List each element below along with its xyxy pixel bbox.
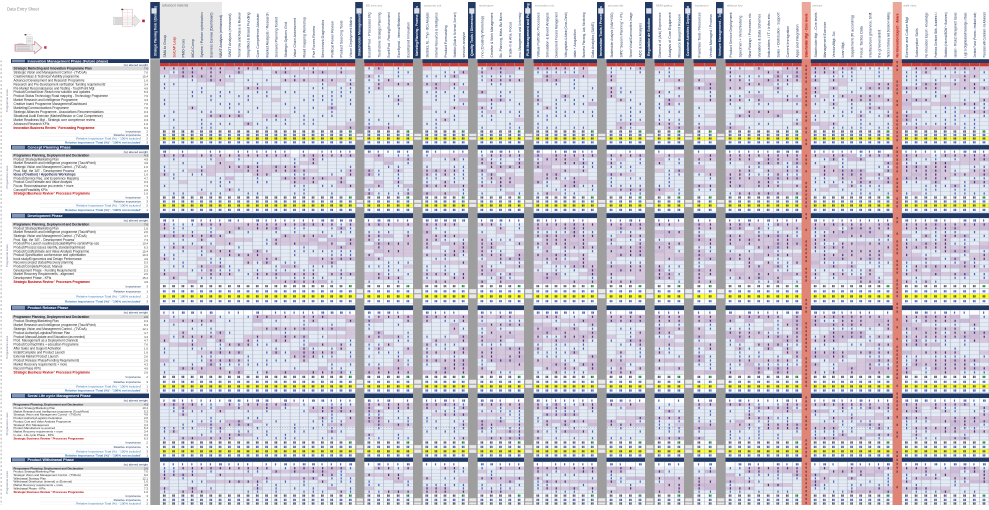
svg-text:Excell/Prod - Processes Mg: Excell/Prod - Processes Mg <box>368 13 372 58</box>
svg-text:Market Analysis / Research: Market Analysis / Research <box>265 13 269 58</box>
svg-text:Statistics (Data to Schemat, S: Statistics (Data to Schemat, Scenari) <box>453 13 457 58</box>
svg-text:PMO Cross: PMO Cross <box>182 39 186 58</box>
svg-text:Processes with Customers - be: Processes with Customers - be Advanced <box>983 13 987 58</box>
svg-text:Value Chain Assessment: Value Chain Assessment <box>293 18 297 58</box>
svg-text:Stakeholder Mgt - Core levels: Stakeholder Mgt - Core levels <box>814 12 818 57</box>
svg-text:Strategic Business Review ' Pr: Strategic Business Review ' Processes Pr… <box>14 436 85 440</box>
svg-text:Supplement (PI according): Supplement (PI according) <box>850 15 854 58</box>
svg-text:Sales + Distribution - Support: Sales + Distribution - Support <box>777 13 781 58</box>
svg-text:Importance: Importance <box>126 375 142 379</box>
svg-text:No Innovation Export - knowled: No Innovation Export - knowledge <box>925 13 929 58</box>
svg-text:Relative importance: Relative importance <box>114 445 142 449</box>
svg-text:Programme Lines: Programme Lines <box>5 165 9 188</box>
svg-text:Product Service Deployment: Product Service Deployment <box>729 13 733 58</box>
svg-text:Product Forecasting: Product Forecasting <box>444 25 448 57</box>
svg-text:New Ratings / Processes etc.: New Ratings / Processes etc. <box>748 12 752 57</box>
svg-text:alliance key: alliance key <box>727 4 743 8</box>
svg-text:Stakeholder Mgt - Core levels: Stakeholder Mgt - Core levels <box>805 14 809 58</box>
svg-text:SoCAP Leap: SoCAP Leap <box>172 37 176 58</box>
svg-text:Product Sourcing Tools: Product Sourcing Tools <box>340 20 344 57</box>
svg-text:Development Process Management: Development Process Management <box>555 13 559 58</box>
svg-text:Product Withdrawal Phase: Product Withdrawal Phase <box>28 458 74 462</box>
svg-text:Relative Importance Total (%): Relative Importance Total (%) - '100% in… <box>76 295 141 299</box>
svg-text:Innovation Business Review ' F: Innovation Business Review ' Forecasting… <box>14 126 95 130</box>
svg-text:the gr/several/d/d: the gr/several/d/d <box>878 30 882 58</box>
svg-text:expansion: expansion <box>695 4 709 8</box>
svg-text:Apps and Integration: Apps and Integration <box>796 24 800 57</box>
svg-text:Industries / IT / Infra etc.: Industries / IT / Infra etc. <box>767 13 771 58</box>
svg-text:Serial Life cycle Management P: Serial Life cycle Management Phase <box>28 394 91 398</box>
svg-text:Programme Lines: Programme Lines <box>5 412 9 435</box>
svg-text:Simulation & Event Analysis: Simulation & Event Analysis <box>546 12 550 57</box>
svg-text:Statistics (Informal/BOW + Bus: Statistics (Informal/BOW + Business) <box>944 13 948 58</box>
svg-text:Internal Resources & Intellige: Internal Resources & Intelligence <box>435 13 439 58</box>
svg-text:Trade-in & Aha. Focus: Trade-in & Aha. Focus <box>509 22 513 58</box>
svg-text:Excell/Prod - Planning/Environ: Excell/Prod - Planning/Environment <box>387 13 391 58</box>
svg-text:Decision Focus (Process - feed: Decision Focus (Process - feedback side) <box>973 13 977 58</box>
svg-text:customer put: customer put <box>424 4 442 8</box>
svg-text:Innovation Management Phase (F: Innovation Management Phase (Future phas… <box>28 59 109 63</box>
svg-text:Diamond of (Anti) Experience: Diamond of (Anti) Experience <box>658 13 662 58</box>
svg-text:Product Release Phase: Product Release Phase <box>28 306 69 310</box>
svg-text:Data Analytics (SAVE): Data Analytics (SAVE) <box>591 22 595 57</box>
svg-text:Exercise and Culture Mgt: Exercise and Culture Mgt <box>905 17 909 57</box>
svg-text:Volks-graphics & Admin (Cross-: Volks-graphics & Admin (Cross-Check) <box>564 13 568 58</box>
svg-text:Interface/core gr/service, Shi: Interface/core gr/service, Shift <box>869 13 873 58</box>
svg-text:Relative Importance Total (%): Relative Importance Total (%) - '100% in… <box>76 502 141 505</box>
svg-text:Strategic Business Review ' Pr: Strategic Business Review ' Processes Pr… <box>14 490 85 494</box>
svg-text:innovation mix: innovation mix <box>535 4 555 8</box>
svg-text:Excell/prod - Internal/Relatio: Excell/prod - Internal/Relations <box>397 12 401 57</box>
svg-text:System / Partner optimisation: System / Partner optimisation <box>200 12 204 57</box>
svg-text:Vendor Managed / Process: Vendor Managed / Process <box>709 14 713 58</box>
svg-text:Variations & Data Schemes: Variations & Data Schemes <box>757 14 761 58</box>
svg-text:Smart Virtual/Communities Imag: Smart Virtual/Communities Image <box>629 13 633 58</box>
svg-text:Five Forces Review: Five Forces Review <box>312 26 316 58</box>
svg-text:4.9: 4.9 <box>144 280 148 284</box>
svg-text:NB/IT Analysis (enhanced): NB/IT Analysis (enhanced) <box>219 15 223 57</box>
svg-text:MCA Comp: MCA Comp <box>191 39 195 57</box>
svg-text:SMA to Group: SMA to Group <box>163 35 167 58</box>
svg-text:Development Phase: Development Phase <box>28 214 63 218</box>
svg-text:Analysis of Core Equipment: Analysis of Core Equipment <box>668 13 672 58</box>
svg-text:Relative importance: Relative importance <box>114 289 142 293</box>
svg-text:Current Immigration: Current Immigration <box>786 26 790 58</box>
svg-text:Business Planning, Lab, Monito: Business Planning, Lab, Monitoring <box>582 13 586 58</box>
svg-text:Logic & Organisation/Knowledge: Logic & Organisation/Knowledge of base <box>963 13 967 58</box>
svg-text:Lean Mgt.: Lean Mgt. <box>841 42 845 58</box>
svg-text:Focus: Tactics Data: Focus: Tactics Data <box>859 26 863 57</box>
svg-text:ADC & Knee Analysis: ADC & Knee Analysis <box>639 23 643 58</box>
svg-text:nno. Management and University: nno. Management and University <box>518 12 522 57</box>
svg-text:SWOT Analysis (enhanced): SWOT Analysis (enhanced) <box>228 13 232 57</box>
svg-text:BD intro any: BD intro any <box>366 4 383 8</box>
svg-text:Regulation de Solution: Regulation de Solution <box>647 18 651 56</box>
svg-text:Resource Blueprint Review: Resource Blueprint Review <box>678 14 682 58</box>
svg-text:Stakeholder Analysis (VdW+VSG): Stakeholder Analysis (VdW+VSG) <box>610 13 614 58</box>
svg-text:techniques: techniques <box>479 4 494 8</box>
svg-text:advanced material: advanced material <box>162 4 188 8</box>
svg-text:Subscription Skills: Subscription Skills <box>915 28 919 57</box>
svg-text:Venture Management - Tools: Venture Management - Tools <box>718 9 722 56</box>
svg-text:nno (Creativity Workshop): nno (Creativity Workshop) <box>481 16 485 57</box>
svg-text:Touchstone Strategic Planning: Touchstone Strategic Planning <box>377 12 381 57</box>
svg-text:Programme Lines: Programme Lines <box>5 89 9 112</box>
svg-text:Strategic Options Grid: Strategic Options Grid <box>284 22 288 57</box>
svg-text:Franchise Tools / Resources: Franchise Tools / Resources <box>698 12 702 57</box>
svg-text:Quality Tools / Dimensions: Quality Tools / Dimensions <box>470 11 474 56</box>
svg-text:Relative Importance 'Total (%): Relative Importance 'Total (%)' - '100% … <box>65 140 141 144</box>
svg-text:Professor. Decisions Skills -: Professor. Decisions Skills - Academic L… <box>934 13 938 58</box>
svg-text:Scenario Planning Toolkit: Scenario Planning Toolkit <box>275 17 279 57</box>
svg-text:Statistics, NL, TTys - BCs Ana: Statistics, NL, TTys - BCs Analysis <box>426 12 430 57</box>
svg-text:Simplified & Brand Funding: Simplified & Brand Funding <box>247 13 251 58</box>
svg-text:Concept Planning Phase: Concept Planning Phase <box>28 146 71 150</box>
svg-text:Management Exercise: Management Exercise <box>823 22 827 58</box>
svg-text:Programme Lines: Programme Lines <box>5 244 9 267</box>
svg-text:Specimen + Verschiedung: Specimen + Verschiedung <box>738 16 742 58</box>
svg-text:Business Canvas (Dashboard): Business Canvas (Dashboard) <box>210 13 214 58</box>
svg-text:Virtual Portfolio Processes: Virtual Portfolio Processes <box>537 12 541 57</box>
svg-text:MMA galaxy: MMA galaxy <box>656 4 673 8</box>
svg-text:SIPC 'Season Planning' + Plu: SIPC 'Season Planning' + Plu <box>619 13 623 58</box>
svg-text:Programme Lines: Programme Lines <box>5 335 9 358</box>
svg-text:Bo. Planning, Meta. Biz Bains: Bo. Planning, Meta. Biz Bains <box>499 12 503 57</box>
svg-text:Tomorrow and Raise & Review: Tomorrow and Raise & Review <box>237 12 241 57</box>
svg-text:Relative Importance 'Total (%): Relative Importance 'Total (%)' - '100% … <box>65 454 141 458</box>
svg-text:Road mapping Workshop: Road mapping Workshop <box>303 17 307 58</box>
svg-text:Strategic Business Review ' Pr: Strategic Business Review ' Processes Pr… <box>14 371 91 375</box>
svg-text:Version/Mgt. Sci.: Version/Mgt. Sci. <box>832 31 836 58</box>
svg-text:process lab: process lab <box>608 4 624 8</box>
svg-text:2.6: 2.6 <box>144 371 148 375</box>
svg-text:Relative Importance 'Total (%): Relative Importance 'Total (%)' - '100% … <box>65 299 141 303</box>
svg-text:Creative & Work Management: Creative & Work Management <box>490 13 494 58</box>
svg-text:Stakeholder Management: Stakeholder Management <box>357 13 361 56</box>
svg-text:No Innovation Export - Aware: No Innovation Export - Aware <box>896 14 900 58</box>
svg-text:Political Power Review: Political Power Review <box>330 21 334 58</box>
svg-text:session analyse: session analyse <box>462 32 466 58</box>
svg-text:Tactics is Delivery and Decisi: Tactics is Delivery and Decision+ Making <box>887 13 891 58</box>
svg-text:Importance: Importance <box>126 441 142 445</box>
svg-text:walk misc: walk misc <box>903 4 917 8</box>
svg-text:venture: venture <box>812 4 822 8</box>
svg-text:Vision Deployment Matrix: Vision Deployment Matrix <box>349 17 353 58</box>
svg-text:Relative importance: Relative importance <box>114 380 142 384</box>
svg-text:Benchmark Diagnostics: Benchmark Diagnostics <box>321 20 325 58</box>
svg-text:Importance: Importance <box>126 284 142 288</box>
svg-text:Strategic Business Review ' Pr: Strategic Business Review ' Processes Pr… <box>14 280 91 284</box>
svg-text:Core Competence Absolute: Core Competence Absolute <box>256 14 260 58</box>
svg-text:Relative Importance 'Total (%): Relative Importance 'Total (%)' - '100% … <box>65 389 141 393</box>
svg-text:data + Acquisition: data + Acquisition <box>573 29 577 57</box>
svg-text:Relative Importance 'Total (%): Relative Importance 'Total (%)' - '100% … <box>65 208 141 212</box>
svg-text:Data Entry Sheet: Data Entry Sheet <box>7 7 40 12</box>
svg-text:Strategic/Business Review ' Pr: Strategic/Business Review ' Processes Pr… <box>14 192 91 196</box>
svg-text:session - Product Management I: session - Product Management Issues <box>954 12 958 57</box>
svg-text:Excell/prod Innovation: Excell/prod Innovation <box>407 22 411 57</box>
svg-text:Programme Lines: Programme Lines <box>5 471 9 494</box>
